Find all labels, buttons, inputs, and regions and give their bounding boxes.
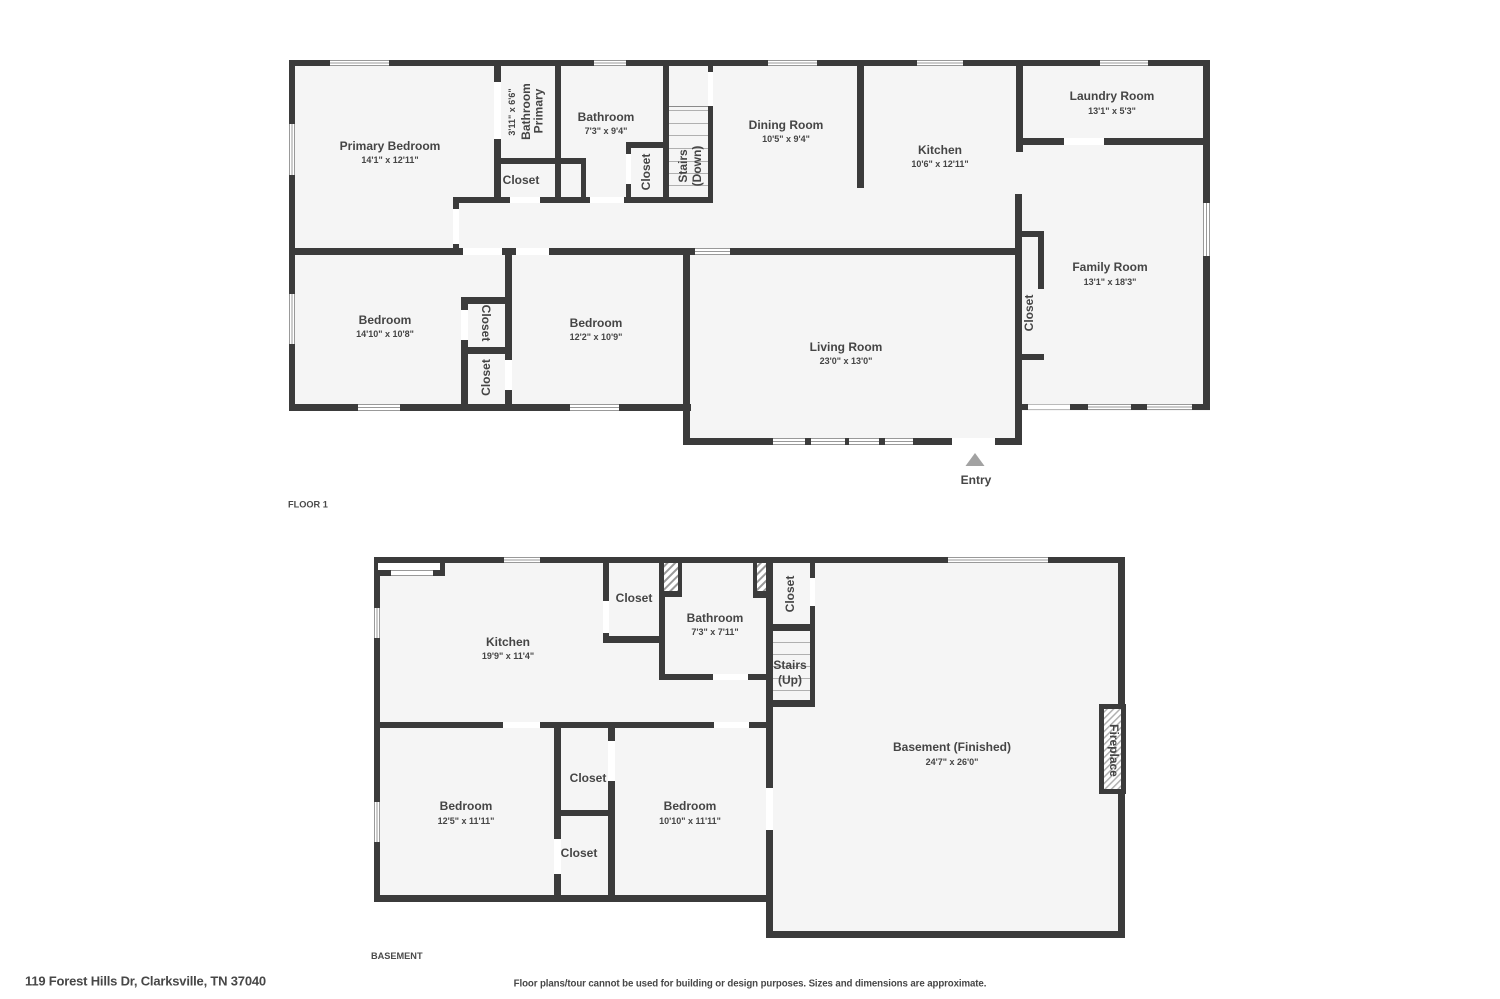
svg-text:Entry: Entry [961, 473, 992, 487]
svg-text:Bathroom: Bathroom [578, 110, 635, 124]
svg-text:Closet: Closet [570, 771, 607, 785]
svg-text:Fireplace: Fireplace [1107, 724, 1121, 777]
svg-text:Living Room: Living Room [810, 340, 883, 354]
svg-text:Closet: Closet [561, 846, 598, 860]
svg-text:Bedroom: Bedroom [570, 316, 623, 330]
svg-text:119 Forest Hills Dr, Clarksvil: 119 Forest Hills Dr, Clarksville, TN 370… [25, 974, 266, 989]
svg-text:Family Room: Family Room [1072, 260, 1147, 274]
svg-text:10'10" x 11'11": 10'10" x 11'11" [659, 816, 721, 826]
svg-text:Closet: Closet [639, 154, 653, 191]
svg-text:12'5" x 11'11": 12'5" x 11'11" [438, 816, 495, 826]
svg-text:24'7" x 26'0": 24'7" x 26'0" [926, 757, 979, 767]
svg-text:14'10" x 10'8": 14'10" x 10'8" [356, 329, 414, 339]
svg-text:(Up): (Up) [778, 673, 802, 687]
svg-text:FLOOR 1: FLOOR 1 [288, 500, 328, 510]
svg-text:BASEMENT: BASEMENT [371, 951, 423, 961]
svg-text:7'3" x 7'11": 7'3" x 7'11" [691, 627, 738, 637]
svg-text:13'1" x 18'3": 13'1" x 18'3" [1084, 277, 1137, 287]
svg-text:10'5" x 9'4": 10'5" x 9'4" [762, 134, 810, 144]
svg-text:(Down): (Down) [690, 146, 704, 187]
svg-text:Kitchen: Kitchen [918, 143, 962, 157]
svg-text:Stairs: Stairs [773, 658, 807, 672]
svg-text:13'1" x 5'3": 13'1" x 5'3" [1088, 106, 1136, 116]
svg-text:14'1" x 12'11": 14'1" x 12'11" [361, 155, 418, 165]
svg-text:10'6" x 12'11": 10'6" x 12'11" [911, 159, 968, 169]
svg-text:12'2" x 10'9": 12'2" x 10'9" [570, 332, 623, 342]
svg-text:Closet: Closet [479, 305, 493, 342]
svg-text:Primary Bedroom: Primary Bedroom [340, 139, 441, 153]
svg-text:Kitchen: Kitchen [486, 635, 530, 649]
svg-text:3'11" x 6'6": 3'11" x 6'6" [507, 88, 517, 135]
svg-text:Closet: Closet [783, 576, 797, 613]
svg-text:19'9" x 11'4": 19'9" x 11'4" [482, 651, 534, 661]
svg-text:Closet: Closet [503, 173, 540, 187]
svg-text:Closet: Closet [616, 591, 653, 605]
svg-text:23'0" x 13'0": 23'0" x 13'0" [820, 356, 873, 366]
svg-text:Dining Room: Dining Room [749, 118, 824, 132]
svg-text:Closet: Closet [1022, 295, 1036, 332]
svg-text:Laundry Room: Laundry Room [1070, 89, 1155, 103]
svg-text:Bedroom: Bedroom [359, 313, 412, 327]
svg-text:Basement (Finished): Basement (Finished) [893, 740, 1011, 754]
svg-text:Stairs: Stairs [676, 149, 690, 183]
svg-text:Primary: Primary [532, 88, 546, 133]
svg-text:7'3" x 9'4": 7'3" x 9'4" [585, 126, 628, 136]
svg-text:Bedroom: Bedroom [664, 799, 717, 813]
svg-text:Bathroom: Bathroom [687, 611, 744, 625]
svg-text:Bedroom: Bedroom [440, 799, 493, 813]
svg-text:Closet: Closet [479, 359, 493, 396]
svg-text:Floor plans/tour cannot be use: Floor plans/tour cannot be used for buil… [514, 979, 987, 990]
